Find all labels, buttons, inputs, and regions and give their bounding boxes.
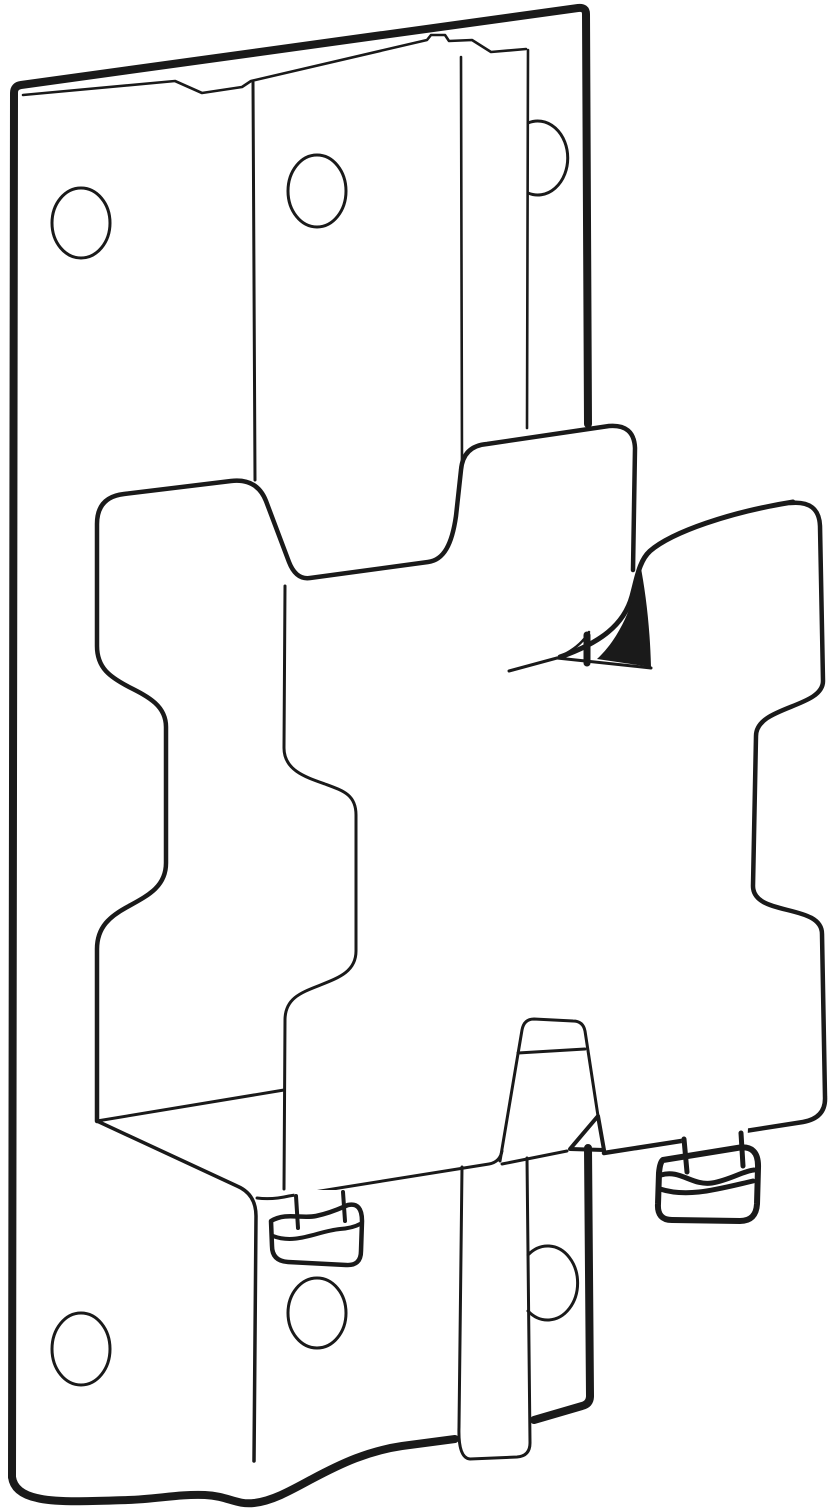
wall-plate: [12, 8, 590, 1503]
left-thumbscrew: [271, 1190, 362, 1265]
top-hem-and-hook-slot: [23, 35, 526, 95]
rear-bracket-tab: [500, 1019, 604, 1164]
hole-top-right-partial: [528, 121, 568, 195]
hole-bottom-middle: [288, 1278, 346, 1348]
bracket-line-drawing: [0, 0, 831, 1510]
hole-bottom-right-partial: [528, 1246, 578, 1320]
hole-top-middle: [288, 155, 346, 227]
tab-crease: [518, 1049, 585, 1053]
illustration-canvas: [0, 0, 831, 1510]
mounting-rail: [253, 50, 528, 480]
hole-top-left: [52, 188, 110, 258]
rail-foot: [459, 1158, 530, 1459]
front-vesa-plate: [97, 426, 825, 1153]
cradle-shelf: [97, 586, 502, 1461]
hole-bottom-left: [52, 1313, 110, 1385]
